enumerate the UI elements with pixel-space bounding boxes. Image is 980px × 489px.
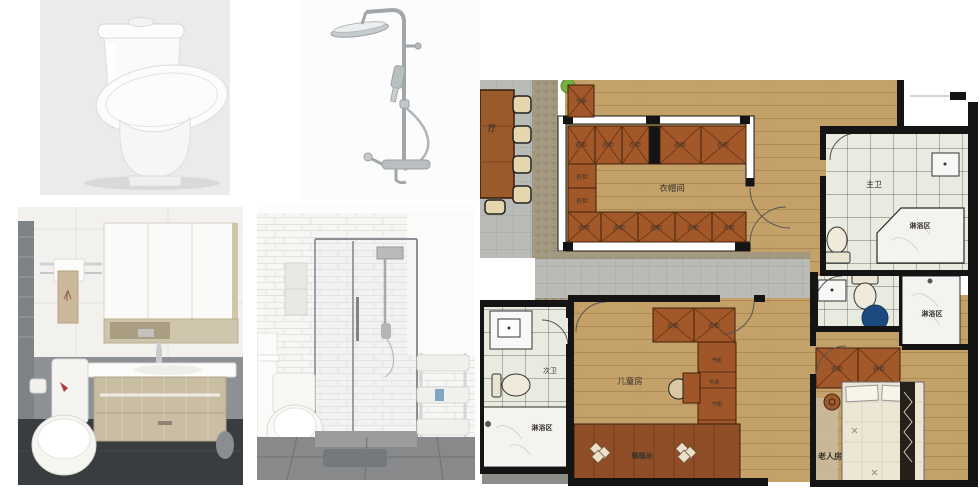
left-bath-toilet [492,374,530,397]
kids-wardrobes: 衣柜 衣柜 [653,308,735,342]
design-board: 厅 [0,0,980,489]
left-shower-area [482,407,568,467]
shower-set-product-image [300,0,480,200]
bookshelf-cabinet: 书架 [568,85,594,117]
label-shower-area: 淋浴区 [922,309,943,318]
room-label-cloakroom: 衣帽间 [659,183,685,194]
tiled-floor [257,431,475,480]
vanity-bathroom-illustration [18,207,243,485]
label-bookshelf: 书架 [575,97,587,105]
label-bookcase: 书柜 [711,400,723,408]
label-wardrobe: 衣柜 [650,224,662,232]
label-wardrobe: 衣柜 [578,224,590,232]
label-wardrobe: 衣柜 [613,224,625,232]
label-tatami: 榻榻米 [631,451,654,460]
label-wardrobe: 衣柜 [602,141,614,149]
bath-mat [323,449,387,467]
dining-table [480,90,514,198]
mirror-cabinet [104,223,238,343]
label-wardrobe: 衣柜 [674,141,686,149]
left-bathroom: 次卫 淋浴区 [482,307,568,484]
shower-set-illustration [300,0,480,200]
label-wardrobe: 衣柜 [576,197,588,205]
label-wardrobe: 衣柜 [575,141,587,149]
dining-area: 厅 [480,80,558,258]
label-shower-area: 淋浴区 [910,221,931,230]
floor-plan-image: 厅 [480,80,980,489]
tatami-platform: 榻榻米 [574,424,740,480]
vanity-bathroom-image [18,207,243,485]
glass-shower-enclosure [315,239,417,439]
toilet-product-illustration [40,0,230,195]
room-label-elder-room: 老人房 [817,451,842,461]
label-bookcase: 书柜 [711,356,723,364]
room-label-hall: 厅 [488,124,496,133]
bedside-stool [824,394,840,410]
desk-chair [669,379,683,399]
floor-plan: 厅 [480,80,980,489]
label-wardrobe: 衣柜 [629,141,641,149]
label-wardrobe: 衣柜 [873,365,885,373]
label-wardrobe: 衣柜 [717,141,729,149]
room-label-second-bath: 次卫 [543,366,557,375]
elder-bed [842,382,924,486]
room-label-master-bath: 主卫 [866,179,882,189]
wall-niche [285,263,307,315]
label-wardrobe: 衣柜 [723,224,735,232]
kids-desk [683,373,700,403]
shower-room-image [257,205,475,480]
room-label-kids-room: 儿童房 [617,376,643,387]
shower-door-handle [356,297,359,341]
shower-room-illustration [257,205,475,480]
master-bathroom: 主卫 淋浴区 [825,133,969,273]
floor-object [216,431,234,459]
label-wardrobe: 衣柜 [708,322,720,330]
label-wardrobe: 衣柜 [831,365,843,373]
toilet-product-image [40,0,230,195]
label-wardrobe: 衣柜 [667,322,679,330]
label-wardrobe: 衣柜 [576,173,588,181]
label-shower-area: 淋浴区 [532,423,553,432]
label-desk: 书桌 [708,378,720,386]
label-wardrobe: 衣柜 [687,224,699,232]
guest-toilet [852,275,878,309]
